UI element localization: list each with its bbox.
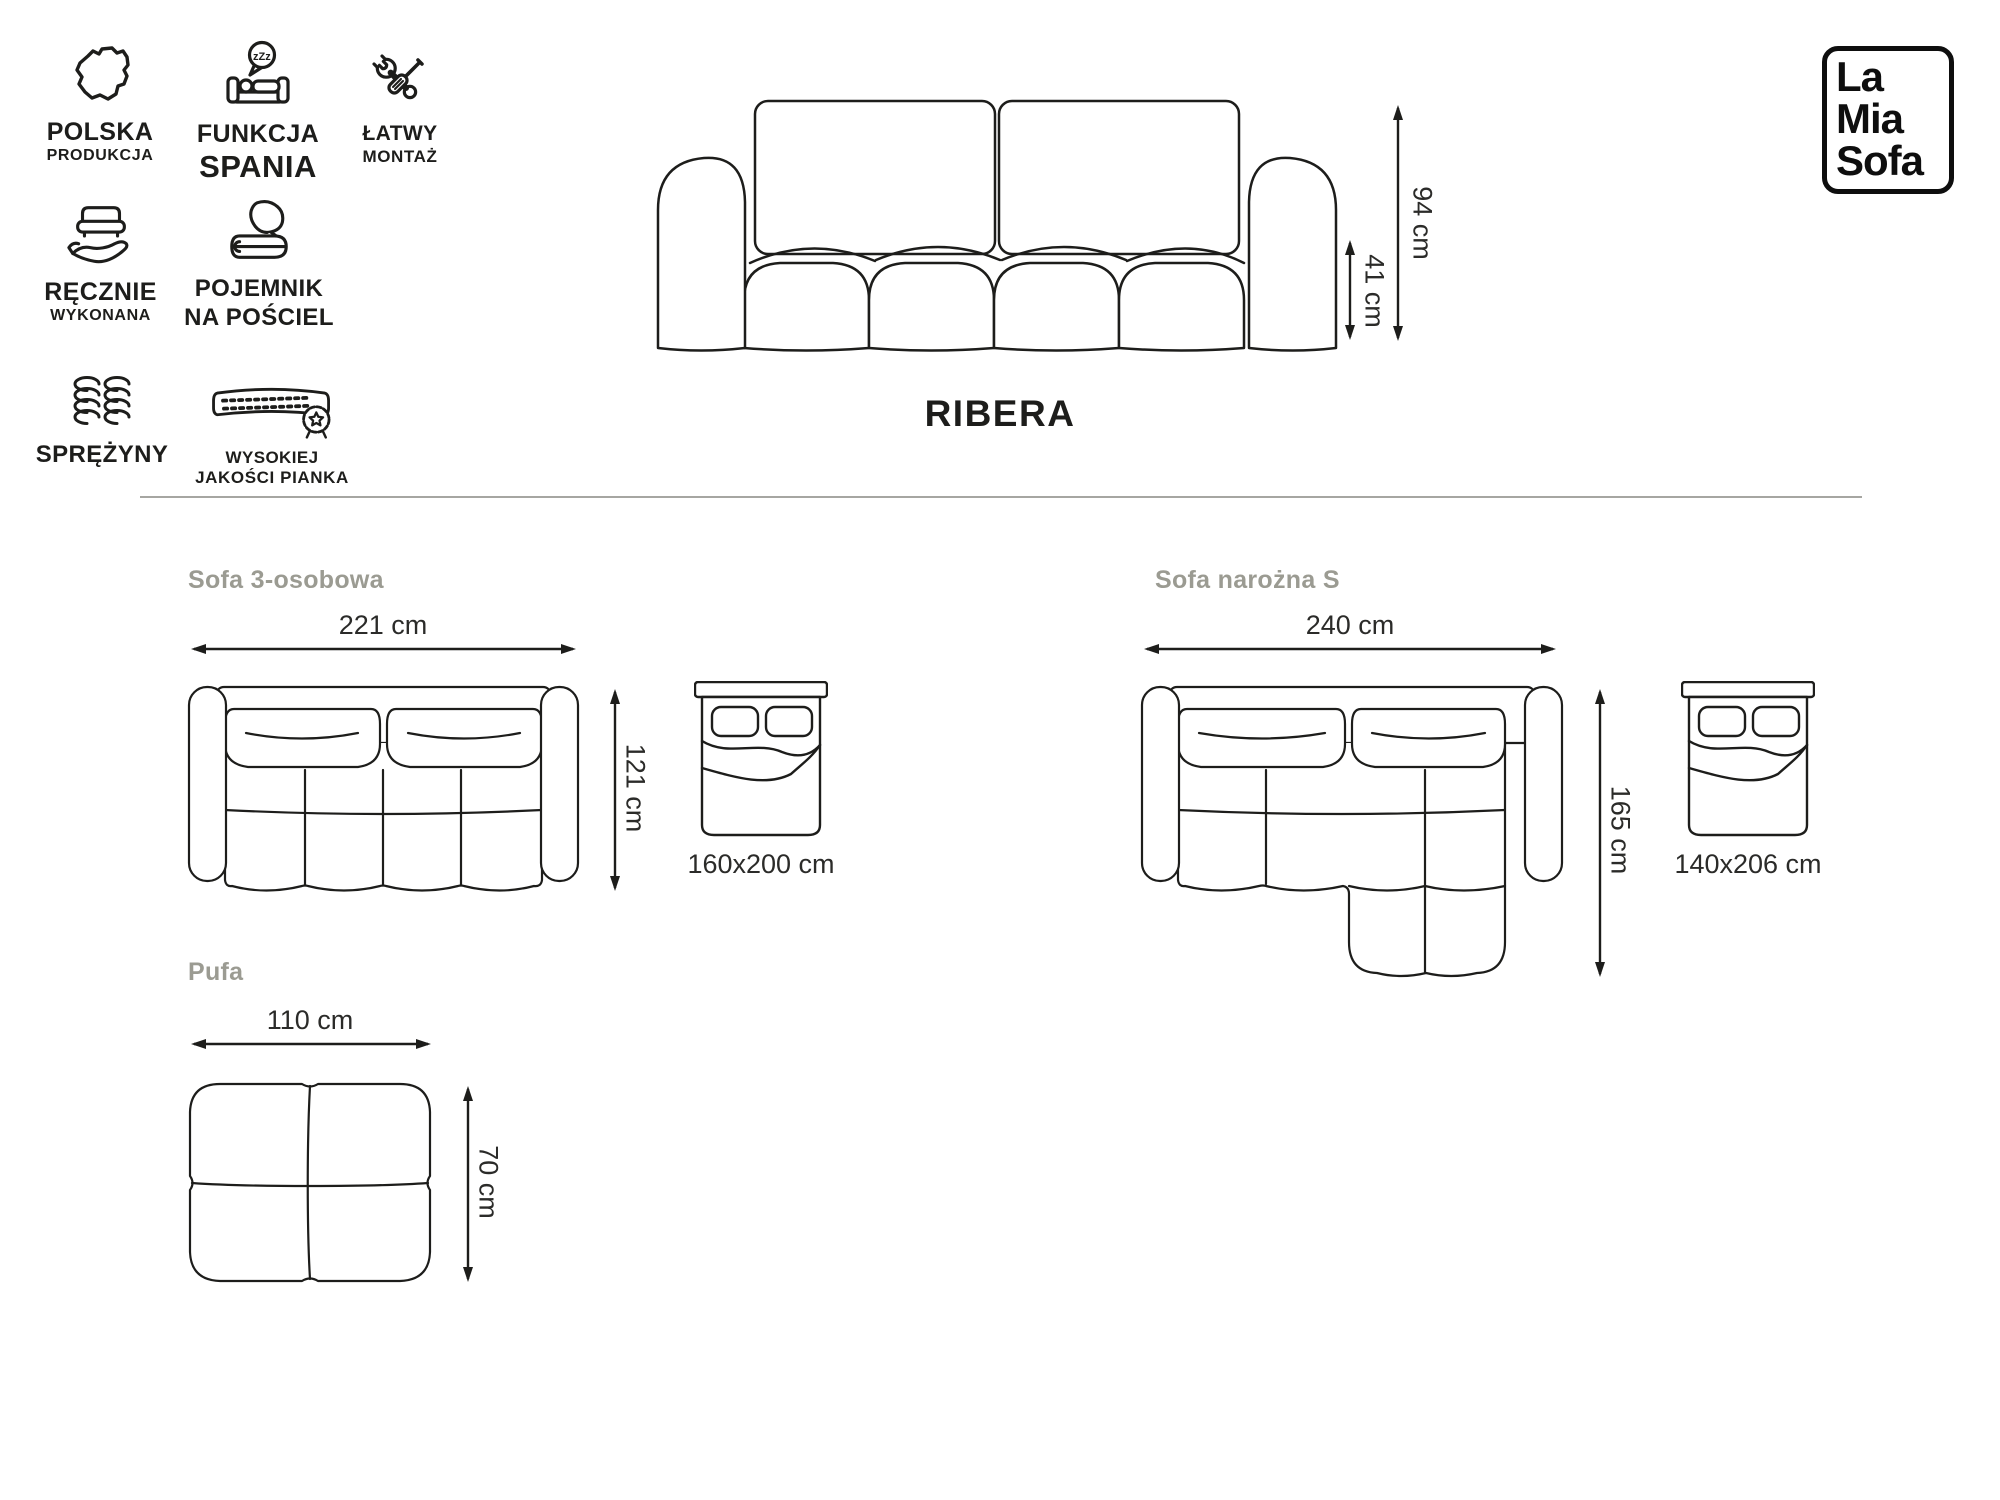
- feature-recznie-wykonana: RĘCZNIE WYKONANA: [28, 198, 173, 326]
- depth-dimension-label: 165 cm: [1605, 786, 1636, 875]
- width-dimension-arrow: [189, 641, 578, 657]
- feature-label: SPRĘŻYNY: [36, 442, 169, 469]
- seat-cushion: [994, 263, 1119, 351]
- seat-cushion: [744, 263, 869, 351]
- depth-dimension-label: 121 cm: [620, 744, 651, 833]
- feature-sublabel: WYKONANA: [50, 306, 151, 326]
- back-cushion: [755, 101, 995, 254]
- logo-line-1: La: [1836, 56, 1949, 98]
- bed-size-label: 140x206 cm: [1674, 849, 1821, 880]
- seat-cushion: [869, 263, 994, 351]
- feature-latwy-montaz: ŁATWY MONTAŻ: [330, 50, 470, 167]
- sofa-front-view-drawing: [652, 98, 1342, 353]
- bed-size-icon: [694, 681, 828, 839]
- section-divider: [140, 496, 1862, 498]
- back-cushion: [999, 101, 1239, 254]
- zzz-glyphs: zZz: [253, 51, 271, 63]
- variant-corner-sofa: Sofa narożna S 240 cm: [1139, 560, 1859, 990]
- seat-height-dimension-label: 41 cm: [1359, 254, 1390, 328]
- feature-label: POLSKA: [47, 118, 154, 146]
- logo-line-3: Sofa: [1836, 140, 1949, 182]
- brand-logo: La Mia Sofa: [1822, 46, 1954, 194]
- feature-sublabel: NA POŚCIEL: [184, 303, 334, 333]
- feature-label: RĘCZNIE: [44, 278, 157, 306]
- bed-size-label: 160x200 cm: [687, 849, 834, 880]
- springs-icon: [70, 376, 134, 434]
- seat-height-dimension-arrow: [1342, 238, 1358, 342]
- product-spec-sheet: POLSKA PRODUKCJA zZz FUNKCJA SPANIA: [0, 0, 2000, 1500]
- width-dimension-arrow: [1142, 641, 1558, 657]
- feature-sublabel: JAKOŚCI PIANKA: [195, 467, 349, 488]
- feature-label: ŁATWY: [362, 122, 437, 146]
- feature-polska-produkcja: POLSKA PRODUKCJA: [30, 42, 170, 166]
- feature-wysokiej-jakosci-pianka: WYSOKIEJ JAKOŚCI PIANKA: [172, 382, 372, 488]
- height-dimension-arrow: [1390, 103, 1406, 343]
- feature-sprezyny: SPRĘŻYNY: [32, 376, 172, 469]
- height-dimension-label: 94 cm: [1407, 186, 1438, 260]
- feature-sublabel: MONTAŻ: [362, 146, 437, 167]
- variant-title: Pufa: [188, 958, 243, 987]
- seat-cushion: [1119, 263, 1244, 351]
- feature-sublabel: PRODUKCJA: [47, 146, 154, 166]
- armrest: [1249, 158, 1336, 351]
- feature-pojemnik-na-posciel: POJEMNIK NA POŚCIEL: [165, 196, 353, 333]
- foam-quality-icon: [206, 382, 338, 440]
- feature-funkcja-spania: zZz FUNKCJA SPANIA: [172, 40, 344, 187]
- top-view-drawing: [186, 1080, 434, 1285]
- variant-title: Sofa narożna S: [1155, 566, 1340, 595]
- product-name: RIBERA: [925, 393, 1076, 435]
- handmade-icon: [64, 198, 138, 270]
- feature-sublabel: SPANIA: [199, 148, 317, 187]
- bed-size-icon: [1681, 681, 1815, 839]
- logo-line-2: Mia: [1836, 98, 1949, 140]
- depth-dimension-label: 70 cm: [473, 1145, 504, 1219]
- top-view-drawing: [1139, 684, 1565, 981]
- variant-pouf: Pufa 110 cm 70 cm: [186, 952, 526, 1302]
- armrest: [658, 158, 745, 351]
- feature-label: POJEMNIK: [195, 276, 324, 303]
- sleep-function-icon: zZz: [220, 40, 296, 112]
- spring-coil: [105, 378, 129, 424]
- top-view-drawing: [186, 684, 581, 896]
- variant-three-seater: Sofa 3-osobowa 221 cm: [186, 560, 846, 890]
- feature-label: WYSOKIEJ: [226, 448, 319, 467]
- poland-map-icon: [66, 42, 134, 110]
- width-dimension-label: 110 cm: [267, 1005, 354, 1036]
- feature-label: FUNKCJA: [197, 120, 319, 148]
- width-dimension-arrow: [189, 1036, 433, 1052]
- bedding-storage-icon: [224, 196, 294, 268]
- width-dimension-label: 221 cm: [339, 610, 428, 641]
- easy-assembly-icon: [368, 50, 432, 114]
- variant-title: Sofa 3-osobowa: [188, 566, 384, 595]
- width-dimension-label: 240 cm: [1306, 610, 1395, 641]
- spring-coil: [75, 378, 99, 424]
